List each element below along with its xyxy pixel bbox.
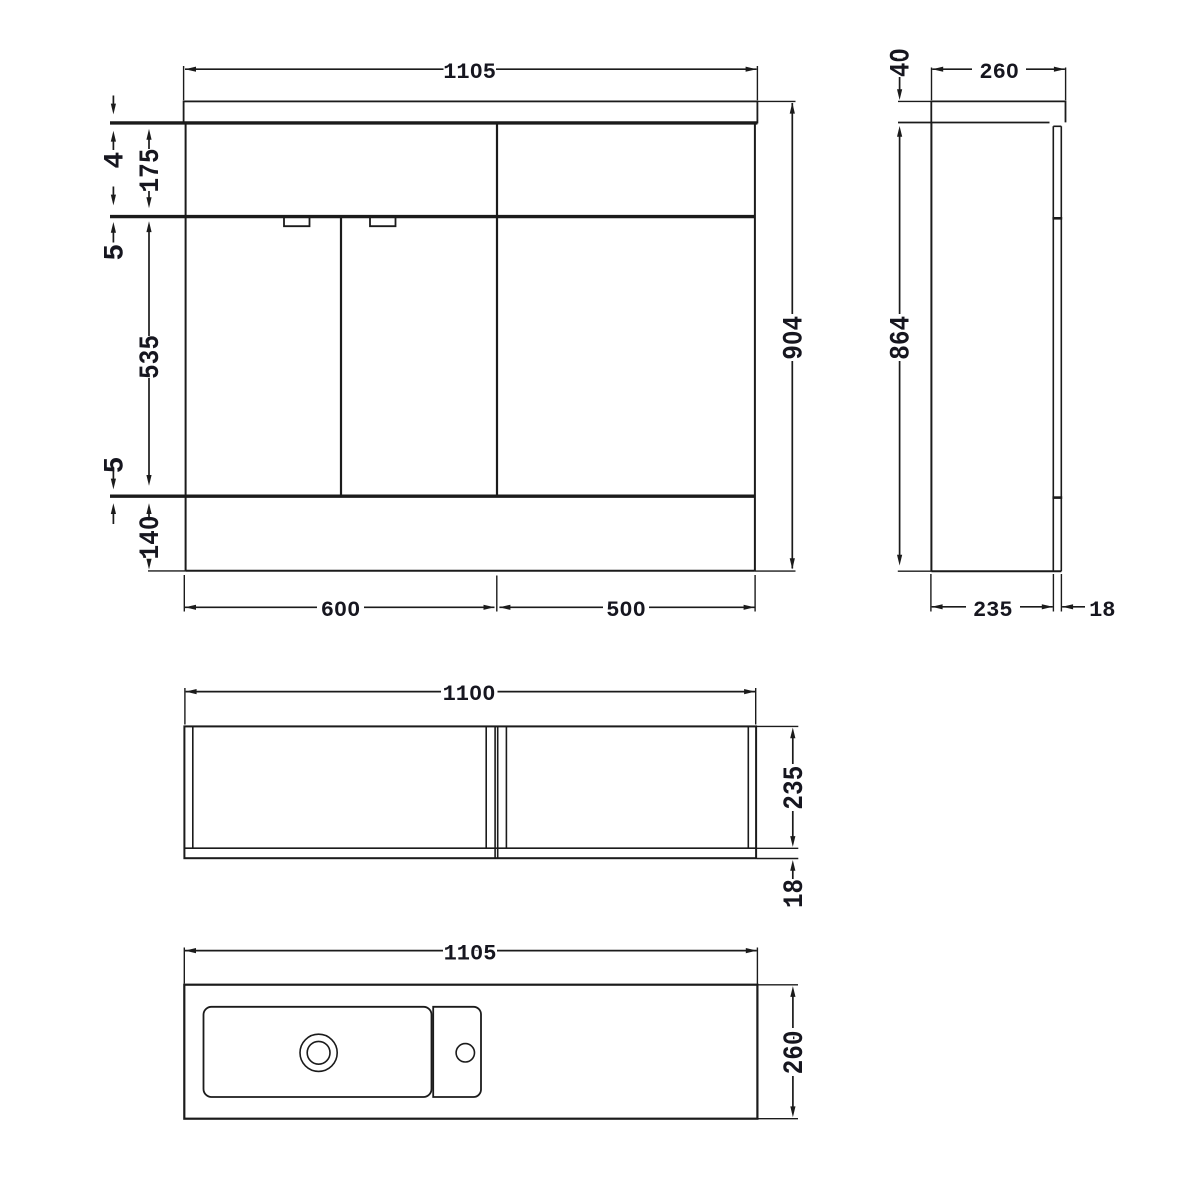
svg-text:235: 235 — [780, 766, 811, 810]
svg-text:1105: 1105 — [443, 60, 496, 85]
svg-text:4: 4 — [100, 152, 131, 169]
svg-text:600: 600 — [321, 598, 361, 623]
svg-text:1100: 1100 — [443, 682, 496, 707]
svg-text:5: 5 — [100, 457, 131, 474]
svg-text:500: 500 — [606, 598, 646, 623]
svg-text:1105: 1105 — [444, 942, 497, 967]
svg-text:864: 864 — [887, 316, 918, 360]
svg-text:40: 40 — [887, 48, 918, 77]
svg-text:904: 904 — [779, 316, 810, 360]
svg-text:5: 5 — [100, 244, 131, 261]
svg-text:18: 18 — [780, 879, 811, 908]
svg-text:260: 260 — [780, 1030, 811, 1074]
svg-text:260: 260 — [979, 60, 1019, 85]
svg-text:175: 175 — [136, 149, 167, 193]
svg-text:18: 18 — [1089, 598, 1115, 623]
svg-text:235: 235 — [973, 598, 1013, 623]
svg-text:535: 535 — [136, 335, 167, 379]
